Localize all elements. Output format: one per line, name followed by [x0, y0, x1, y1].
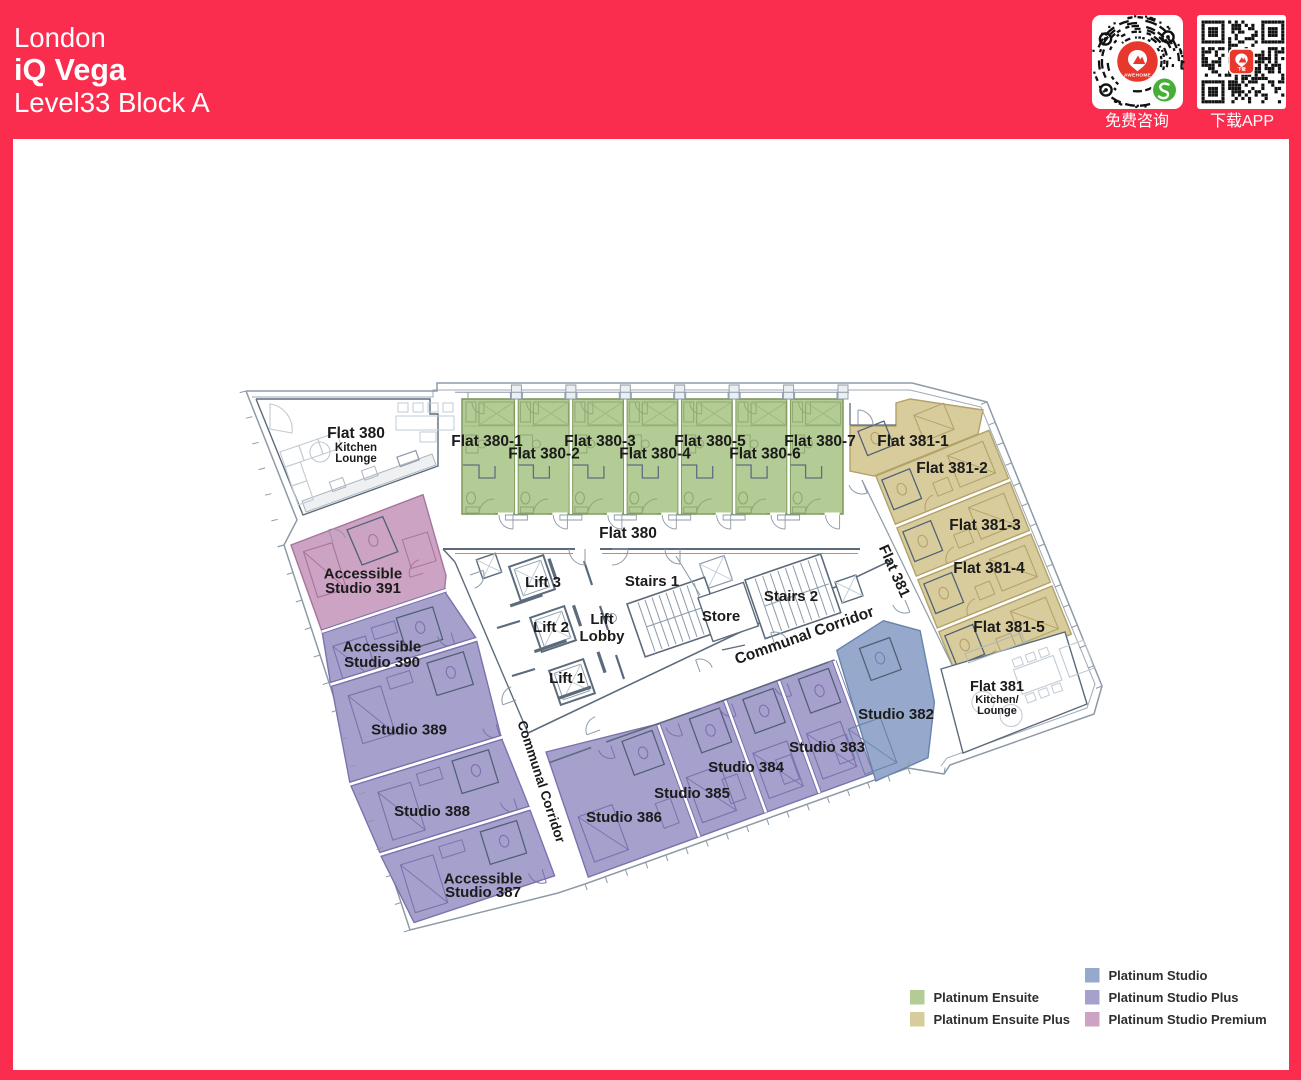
svg-text:Flat 381-2: Flat 381-2 [916, 460, 988, 477]
svg-text:Studio 391: Studio 391 [325, 580, 401, 597]
svg-text:Level33 Block A: Level33 Block A [14, 87, 210, 118]
svg-text:Studio 390: Studio 390 [344, 654, 420, 671]
svg-text:Platinum Ensuite: Platinum Ensuite [934, 990, 1039, 1005]
svg-text:Lift 2: Lift 2 [533, 619, 569, 636]
svg-text:Platinum Ensuite Plus: Platinum Ensuite Plus [934, 1012, 1071, 1027]
svg-text:Flat 381: Flat 381 [970, 679, 1024, 695]
svg-text:Lift: Lift [590, 611, 613, 628]
svg-text:Flat 381-3: Flat 381-3 [949, 517, 1021, 534]
svg-text:Flat 380: Flat 380 [599, 525, 657, 542]
svg-text:下载: 下载 [1237, 66, 1246, 73]
svg-text:Lounge: Lounge [335, 453, 377, 465]
svg-text:免费咨询: 免费咨询 [1105, 112, 1169, 130]
svg-text:Studio 386: Studio 386 [586, 809, 662, 826]
svg-text:Studio 382: Studio 382 [858, 706, 934, 723]
svg-text:Lift 1: Lift 1 [549, 670, 585, 687]
svg-text:Stairs 1: Stairs 1 [625, 573, 679, 590]
svg-text:Lobby: Lobby [580, 628, 626, 645]
svg-text:Studio 385: Studio 385 [654, 785, 730, 802]
svg-text:Lift 3: Lift 3 [525, 574, 561, 591]
svg-text:Studio 388: Studio 388 [394, 803, 470, 820]
svg-text:London: London [14, 22, 106, 53]
svg-text:Store: Store [702, 608, 740, 625]
svg-text:Flat 381-4: Flat 381-4 [953, 560, 1025, 577]
svg-text:Flat 380: Flat 380 [327, 425, 385, 442]
svg-text:Flat 381-5: Flat 381-5 [973, 619, 1045, 636]
svg-text:Platinum Studio Premium: Platinum Studio Premium [1109, 1012, 1267, 1027]
svg-text:Studio 384: Studio 384 [708, 759, 785, 776]
svg-text:Flat 380-7: Flat 380-7 [784, 433, 856, 450]
svg-text:iQ Vega: iQ Vega [14, 53, 127, 87]
svg-text:下载APP: 下载APP [1210, 112, 1274, 130]
svg-text:Studio 387: Studio 387 [445, 884, 521, 901]
svg-text:AWEHOME: AWEHOME [1124, 73, 1151, 78]
svg-text:Studio 383: Studio 383 [789, 739, 865, 756]
svg-text:Platinum Studio: Platinum Studio [1109, 968, 1208, 983]
svg-text:Studio 389: Studio 389 [371, 722, 447, 739]
svg-text:Stairs 2: Stairs 2 [764, 588, 818, 605]
svg-text:Lounge: Lounge [977, 705, 1017, 717]
svg-text:Accessible: Accessible [343, 639, 421, 656]
svg-text:Platinum Studio Plus: Platinum Studio Plus [1109, 990, 1239, 1005]
svg-text:Flat 381-1: Flat 381-1 [877, 433, 949, 450]
